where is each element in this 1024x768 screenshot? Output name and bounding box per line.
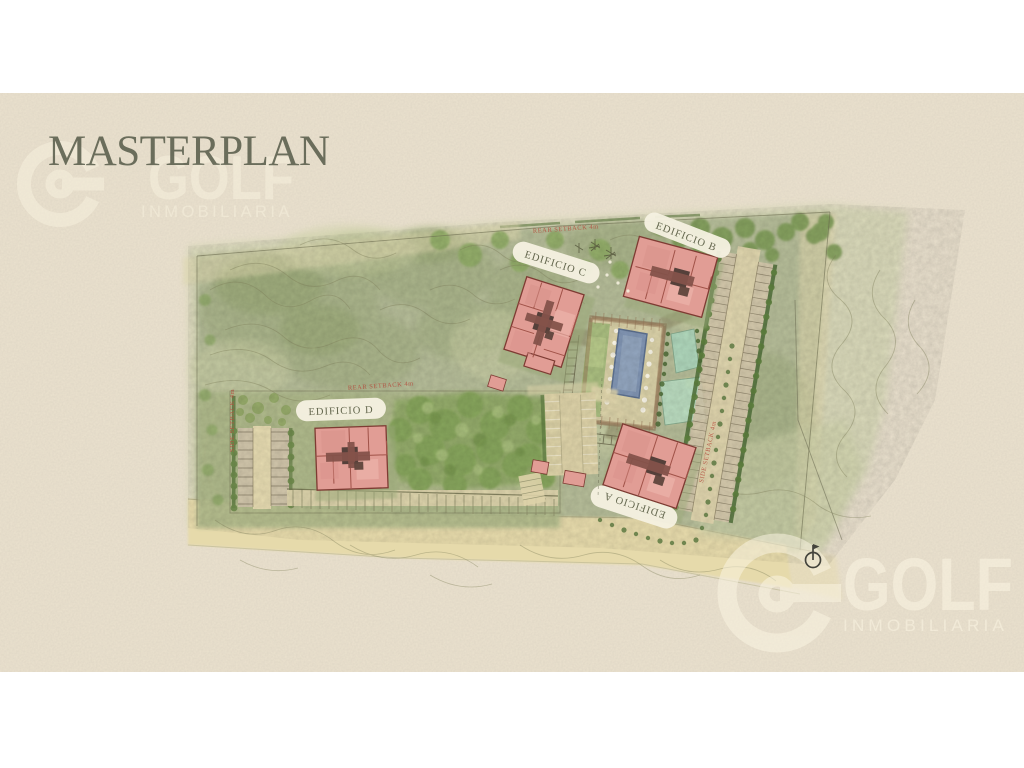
svg-text:GOLF: GOLF: [843, 543, 1013, 626]
svg-text:INMOBILIARIA: INMOBILIARIA: [141, 203, 293, 221]
svg-text:EDIFICIO D: EDIFICIO D: [308, 405, 373, 418]
svg-text:INMOBILIARIA: INMOBILIARIA: [843, 616, 1008, 635]
svg-text:MASTERPLAN: MASTERPLAN: [48, 128, 330, 175]
svg-text:SIDE SETBACK 4m: SIDE SETBACK 4m: [229, 389, 236, 452]
